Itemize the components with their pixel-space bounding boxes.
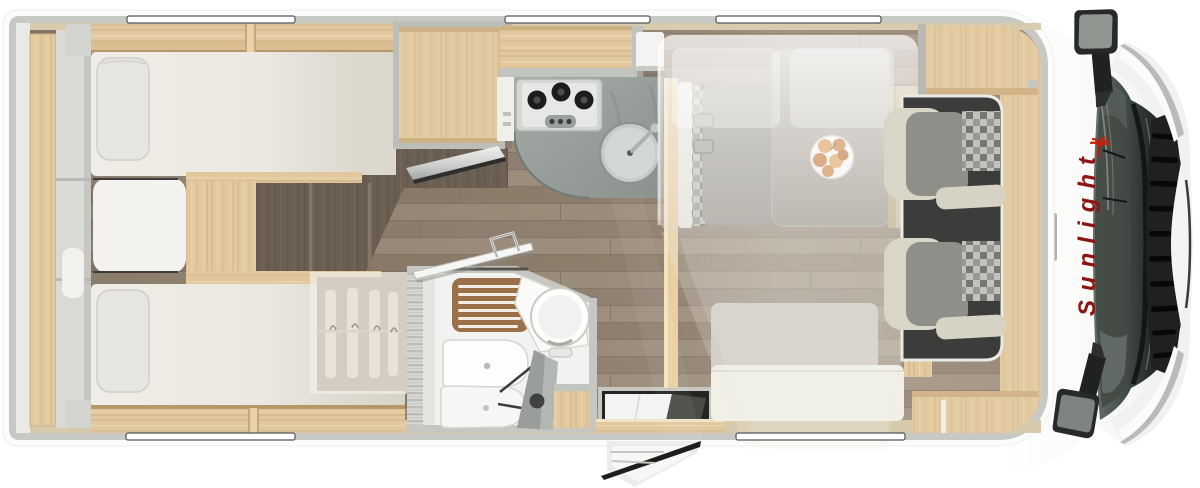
svg-text:Sunlight: Sunlight: [1074, 148, 1101, 316]
